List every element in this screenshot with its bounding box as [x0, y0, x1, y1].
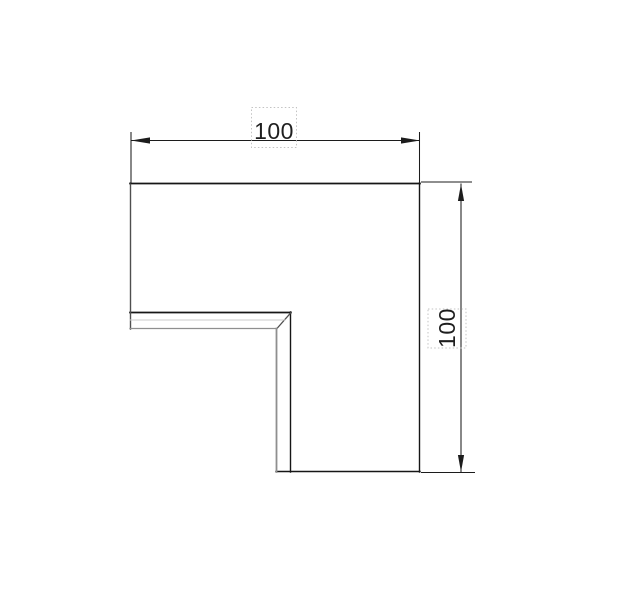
drawing-canvas: 100 100: [0, 0, 627, 597]
vertical-dimension-value[interactable]: 100: [434, 308, 460, 348]
horizontal-dimension-value[interactable]: 100: [254, 118, 294, 144]
part-drawing: 100 100: [0, 0, 627, 597]
v-dim-arrowhead-top-icon: [458, 184, 464, 201]
h-dim-arrowhead-right-icon: [401, 137, 420, 143]
miter-edge: [277, 313, 292, 330]
h-dim-arrowhead-left-icon: [131, 137, 150, 143]
part-geometry: [130, 183, 420, 472]
horizontal-dimension[interactable]: 100: [131, 108, 420, 185]
v-dim-arrowhead-bottom-icon: [458, 455, 464, 472]
vertical-dimension[interactable]: 100: [421, 182, 475, 473]
